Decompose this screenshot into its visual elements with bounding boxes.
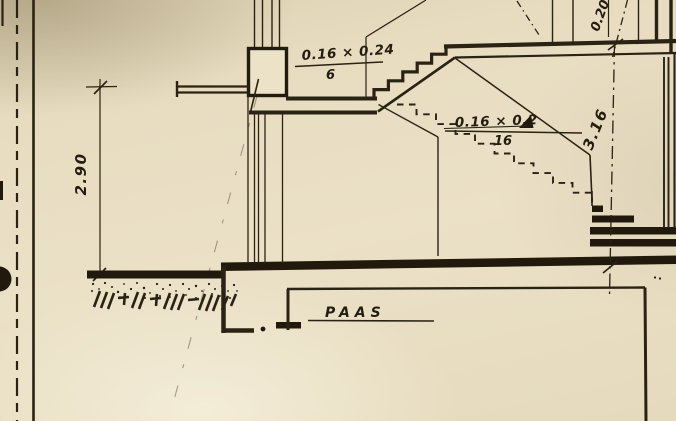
dimension-line-left-height (86, 79, 117, 281)
crease-line (171, 96, 257, 411)
annotation-upper-flight: 0.16 × 0.24 6 (295, 42, 395, 83)
paas-platform (287, 276, 661, 421)
dimension-label-right-height: 3.16 (579, 106, 612, 153)
ground-hatching (91, 282, 238, 311)
right-wall (657, 0, 675, 228)
stair-section-drawing: 2.90 (0, 0, 676, 421)
handrail (177, 79, 259, 112)
margin-lines (0, 0, 34, 421)
landing-beam-section (249, 49, 287, 96)
dimension-label-top-right: 0.20 (588, 0, 613, 33)
blueprint-paper: 2.90 (0, 0, 676, 421)
punch-hole-mark (0, 267, 12, 292)
upper-wall-lines (255, 0, 280, 47)
upper-flight-dim-label: 0.16 × 0.24 (301, 42, 395, 64)
landing-slab (249, 99, 377, 113)
upper-floor-slab (444, 41, 676, 58)
upper-flight-count-label: 6 (326, 68, 335, 83)
ground-floor-slab (87, 256, 676, 279)
lower-flight-count-label: 16 (494, 134, 512, 149)
dimension-label-left-height: 2.90 (72, 152, 90, 195)
foundation-label: PAAS (325, 305, 386, 321)
annotation-lower-flight: 0.16 × 0.2 16 (444, 112, 582, 149)
wall-below-landing (248, 96, 283, 264)
